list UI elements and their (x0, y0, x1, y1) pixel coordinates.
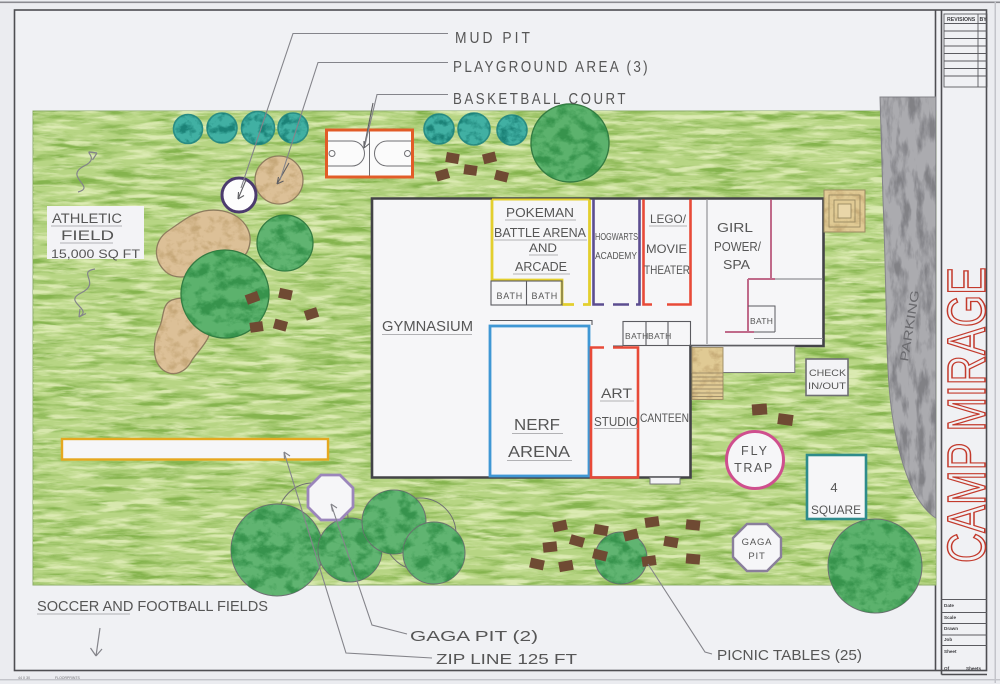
svg-text:44 X 30: 44 X 30 (18, 676, 30, 680)
svg-text:HOGWARTS: HOGWARTS (595, 231, 638, 243)
svg-text:CHECK: CHECK (809, 368, 847, 379)
svg-text:FLY: FLY (741, 444, 769, 458)
svg-text:GAGA: GAGA (742, 537, 773, 548)
svg-text:AND: AND (529, 241, 557, 255)
svg-text:CAMP MIRAGE: CAMP MIRAGE (937, 267, 997, 563)
svg-text:MOVIE: MOVIE (646, 242, 687, 256)
svg-text:NERF: NERF (514, 417, 560, 434)
svg-text:PICNIC TABLES (25): PICNIC TABLES (25) (717, 647, 862, 664)
svg-text:THEATER: THEATER (644, 263, 690, 277)
svg-text:BATH: BATH (648, 331, 672, 341)
svg-text:IN/OUT: IN/OUT (808, 381, 846, 392)
svg-text:BASKETBALL COURT: BASKETBALL COURT (453, 91, 628, 108)
svg-text:GYMNASIUM: GYMNASIUM (382, 319, 473, 335)
svg-text:Date: Date (944, 603, 954, 608)
svg-text:Sheet: Sheet (944, 649, 957, 654)
svg-text:ACADEMY: ACADEMY (595, 250, 637, 262)
svg-text:ARENA: ARENA (508, 444, 571, 461)
svg-text:FLOORPRINTS: FLOORPRINTS (55, 676, 81, 680)
svg-text:15,000 SQ FT: 15,000 SQ FT (51, 247, 141, 261)
svg-text:BATTLE ARENA: BATTLE ARENA (494, 226, 587, 240)
svg-text:FIELD: FIELD (61, 228, 114, 243)
svg-text:BATH: BATH (625, 331, 649, 341)
svg-text:Of: Of (944, 666, 950, 671)
svg-text:ZIP LINE 125 FT: ZIP LINE 125 FT (436, 651, 577, 668)
svg-text:GAGA PIT (2): GAGA PIT (2) (410, 628, 538, 645)
svg-text:POWER/: POWER/ (714, 239, 761, 254)
svg-text:4: 4 (830, 480, 837, 495)
svg-text:BATH: BATH (497, 291, 524, 301)
svg-text:SOCCER AND FOOTBALL FIELDS: SOCCER AND FOOTBALL FIELDS (37, 599, 268, 615)
svg-text:BATH: BATH (750, 316, 773, 326)
svg-text:GIRL: GIRL (717, 220, 753, 235)
svg-text:STUDIO: STUDIO (594, 414, 638, 429)
svg-text:Drawn: Drawn (944, 626, 958, 631)
svg-text:ARCADE: ARCADE (515, 260, 567, 274)
svg-text:PLAYGROUND AREA (3): PLAYGROUND AREA (3) (453, 59, 650, 76)
svg-text:SPA: SPA (723, 257, 750, 272)
svg-text:ART: ART (601, 385, 632, 401)
svg-text:ATHLETIC: ATHLETIC (52, 211, 122, 226)
svg-text:Job: Job (944, 637, 952, 642)
svg-text:POKEMAN: POKEMAN (506, 205, 574, 220)
svg-text:BY: BY (980, 17, 988, 23)
svg-text:Scale: Scale (944, 615, 956, 620)
svg-text:SQUARE: SQUARE (811, 503, 861, 517)
svg-text:PIT: PIT (748, 551, 765, 562)
svg-text:REVISIONS: REVISIONS (947, 17, 976, 23)
svg-text:MUD PIT: MUD PIT (455, 30, 533, 47)
svg-text:Sheets: Sheets (966, 666, 982, 671)
svg-text:TRAP: TRAP (734, 461, 774, 475)
svg-text:CANTEEN: CANTEEN (640, 411, 689, 425)
svg-text:LEGO/: LEGO/ (650, 212, 687, 226)
svg-text:BATH: BATH (532, 291, 559, 301)
